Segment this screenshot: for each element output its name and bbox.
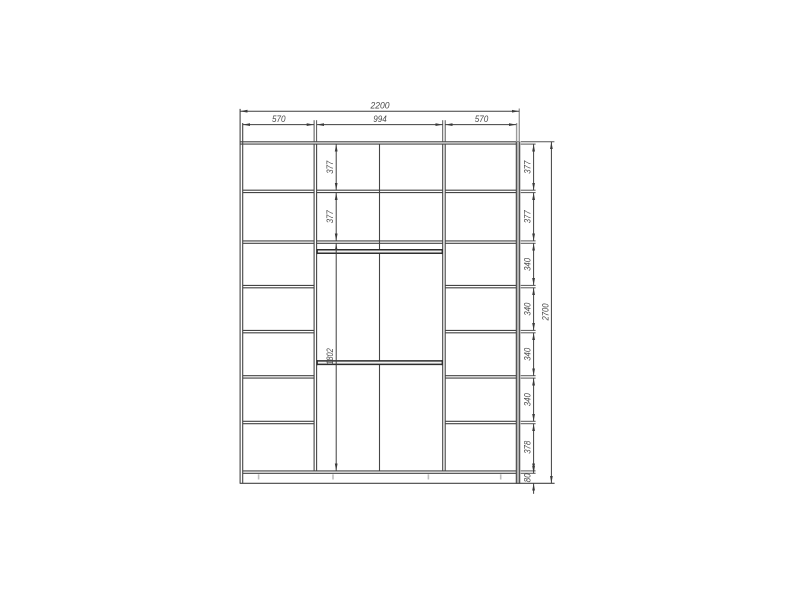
svg-text:2700: 2700	[540, 303, 550, 322]
svg-text:340: 340	[523, 347, 533, 361]
svg-text:340: 340	[523, 302, 533, 316]
svg-text:377: 377	[325, 210, 335, 224]
svg-text:377: 377	[523, 160, 533, 174]
svg-text:994: 994	[373, 114, 387, 124]
svg-text:377: 377	[523, 210, 533, 224]
svg-text:340: 340	[523, 392, 533, 406]
svg-text:80: 80	[523, 473, 533, 483]
svg-text:2200: 2200	[370, 101, 391, 111]
svg-text:378: 378	[523, 440, 533, 454]
svg-text:570: 570	[272, 114, 286, 124]
svg-text:377: 377	[325, 160, 335, 174]
svg-text:1802: 1802	[325, 348, 335, 365]
svg-text:570: 570	[475, 114, 489, 124]
svg-text:340: 340	[523, 257, 533, 271]
